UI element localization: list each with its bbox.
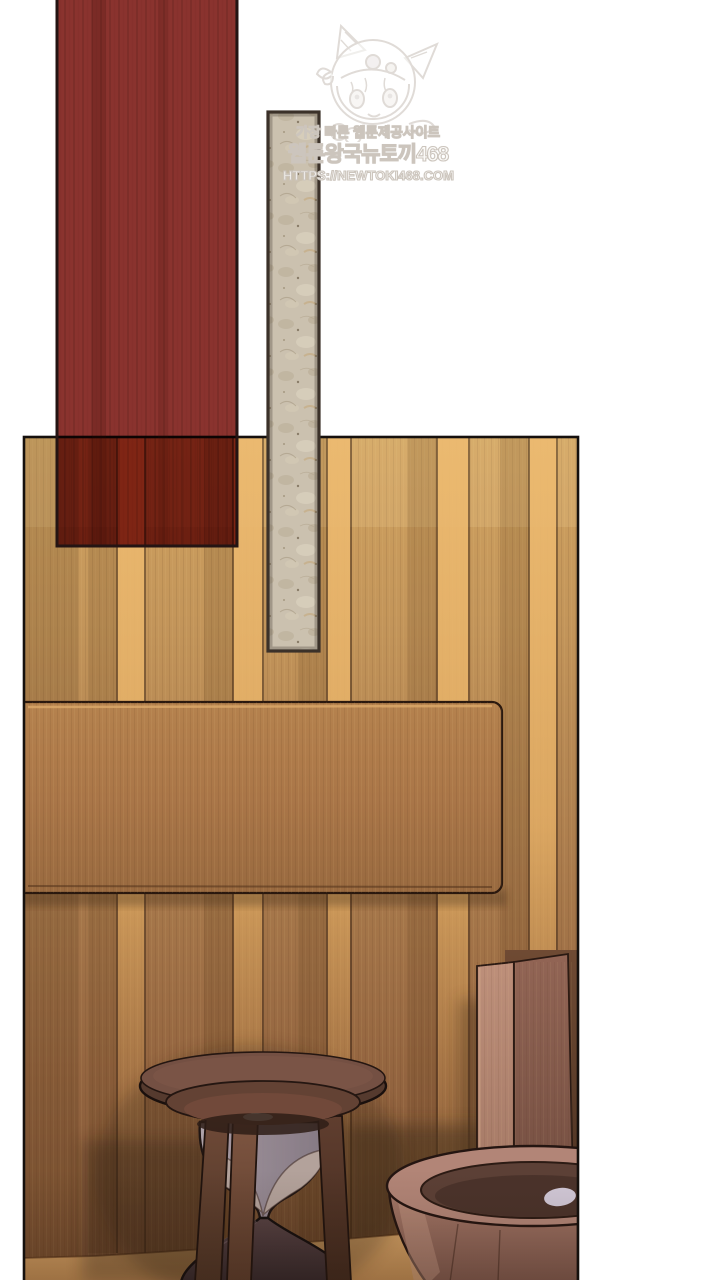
cap-under-shadow bbox=[197, 1113, 329, 1135]
artwork-scene bbox=[0, 0, 720, 1280]
webtoon-page: 가장 빠른 웹툰제공사이트 웹툰왕국뉴토끼468 HTTPS://NEWTOKI… bbox=[0, 0, 720, 1280]
bottom-vignette bbox=[24, 1170, 578, 1280]
scroll-paper bbox=[268, 112, 319, 651]
banner-fold-shade bbox=[92, 0, 106, 546]
wall-board bbox=[16, 702, 502, 893]
board-top-highlight bbox=[28, 706, 492, 707]
red-banner bbox=[57, 0, 237, 546]
paper-scroll bbox=[268, 112, 319, 651]
room-panel bbox=[16, 437, 679, 1280]
